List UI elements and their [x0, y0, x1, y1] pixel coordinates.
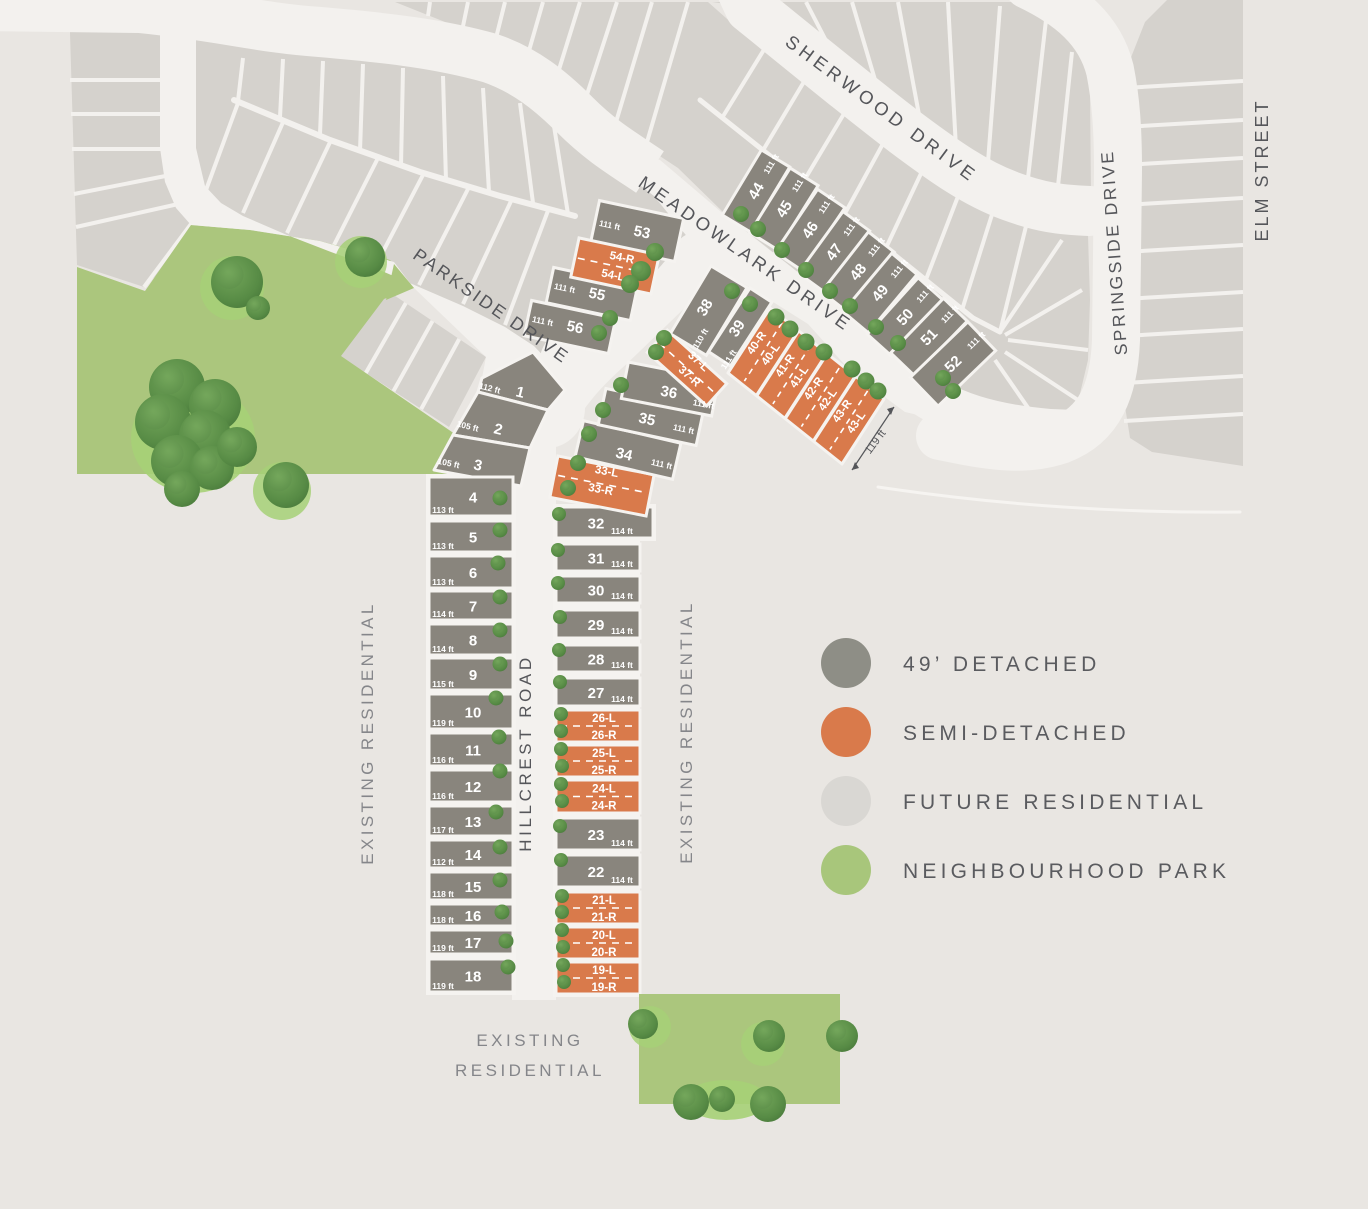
- svg-text:113 ft: 113 ft: [432, 541, 454, 551]
- svg-text:114 ft: 114 ft: [611, 626, 633, 636]
- svg-text:RESIDENTIAL: RESIDENTIAL: [455, 1061, 605, 1080]
- svg-text:23: 23: [588, 827, 605, 844]
- svg-text:116 ft: 116 ft: [432, 791, 454, 801]
- svg-text:21-R: 21-R: [592, 912, 618, 924]
- svg-text:32: 32: [588, 516, 605, 533]
- svg-text:31: 31: [588, 551, 605, 568]
- svg-text:53: 53: [632, 223, 652, 243]
- svg-text:55: 55: [587, 285, 607, 305]
- svg-text:28: 28: [588, 652, 605, 669]
- svg-text:29: 29: [588, 617, 605, 634]
- svg-text:114 ft: 114 ft: [611, 526, 633, 536]
- svg-text:117 ft: 117 ft: [432, 825, 454, 835]
- svg-text:21-L: 21-L: [592, 895, 616, 907]
- svg-text:119 ft: 119 ft: [432, 981, 454, 991]
- svg-text:114 ft: 114 ft: [611, 559, 633, 569]
- svg-text:114 ft: 114 ft: [611, 838, 633, 848]
- svg-text:11: 11: [465, 743, 481, 760]
- svg-text:10: 10: [465, 705, 482, 722]
- svg-text:20-R: 20-R: [592, 947, 618, 959]
- svg-text:114 ft: 114 ft: [611, 875, 633, 885]
- svg-text:12: 12: [465, 779, 482, 796]
- svg-text:119 ft: 119 ft: [432, 718, 454, 728]
- svg-text:HILLCREST ROAD: HILLCREST ROAD: [516, 654, 535, 851]
- svg-text:13: 13: [465, 814, 482, 831]
- svg-text:116 ft: 116 ft: [432, 755, 454, 765]
- svg-text:112 ft: 112 ft: [432, 857, 454, 867]
- svg-text:114 ft: 114 ft: [611, 660, 633, 670]
- svg-text:15: 15: [465, 879, 482, 896]
- svg-text:EXISTING RESIDENTIAL: EXISTING RESIDENTIAL: [677, 600, 696, 864]
- svg-text:27: 27: [588, 685, 605, 702]
- svg-text:14: 14: [465, 847, 482, 864]
- svg-text:SEMI-DETACHED: SEMI-DETACHED: [903, 722, 1130, 745]
- svg-text:EXISTING RESIDENTIAL: EXISTING RESIDENTIAL: [358, 601, 377, 865]
- svg-text:7: 7: [469, 599, 477, 616]
- svg-text:30: 30: [588, 583, 605, 600]
- svg-text:113 ft: 113 ft: [432, 505, 454, 515]
- svg-text:36: 36: [659, 383, 679, 403]
- svg-text:EXISTING: EXISTING: [476, 1031, 583, 1050]
- svg-text:9: 9: [469, 667, 477, 684]
- svg-text:FUTURE RESIDENTIAL: FUTURE RESIDENTIAL: [903, 791, 1207, 814]
- svg-text:26-R: 26-R: [592, 730, 618, 742]
- svg-text:25-R: 25-R: [592, 765, 618, 777]
- svg-text:22: 22: [588, 864, 605, 881]
- svg-text:18: 18: [465, 969, 482, 986]
- svg-text:56: 56: [565, 318, 585, 338]
- svg-text:17: 17: [465, 935, 482, 952]
- svg-text:114 ft: 114 ft: [432, 609, 454, 619]
- svg-text:25-L: 25-L: [592, 748, 616, 760]
- svg-text:114 ft: 114 ft: [432, 644, 454, 654]
- svg-text:NEIGHBOURHOOD PARK: NEIGHBOURHOOD PARK: [903, 860, 1230, 883]
- svg-text:6: 6: [469, 565, 477, 582]
- svg-text:19-R: 19-R: [592, 982, 618, 994]
- svg-text:26-L: 26-L: [592, 713, 616, 725]
- svg-text:5: 5: [469, 530, 477, 547]
- svg-text:35: 35: [637, 410, 657, 430]
- svg-text:49’ DETACHED: 49’ DETACHED: [903, 653, 1100, 676]
- svg-text:16: 16: [465, 908, 482, 925]
- svg-text:8: 8: [469, 633, 477, 650]
- svg-text:114 ft: 114 ft: [611, 694, 633, 704]
- svg-text:118 ft: 118 ft: [432, 889, 454, 899]
- svg-text:24-R: 24-R: [592, 801, 618, 813]
- svg-text:24-L: 24-L: [592, 784, 616, 796]
- svg-text:115 ft: 115 ft: [432, 679, 454, 689]
- svg-text:113 ft: 113 ft: [432, 577, 454, 587]
- svg-text:114 ft: 114 ft: [611, 591, 633, 601]
- svg-text:19-L: 19-L: [592, 965, 616, 977]
- svg-text:4: 4: [469, 490, 478, 507]
- svg-text:20-L: 20-L: [592, 930, 616, 942]
- svg-text:118 ft: 118 ft: [432, 915, 454, 925]
- svg-text:119 ft: 119 ft: [432, 943, 454, 953]
- svg-text:ELM STREET: ELM STREET: [1252, 98, 1272, 241]
